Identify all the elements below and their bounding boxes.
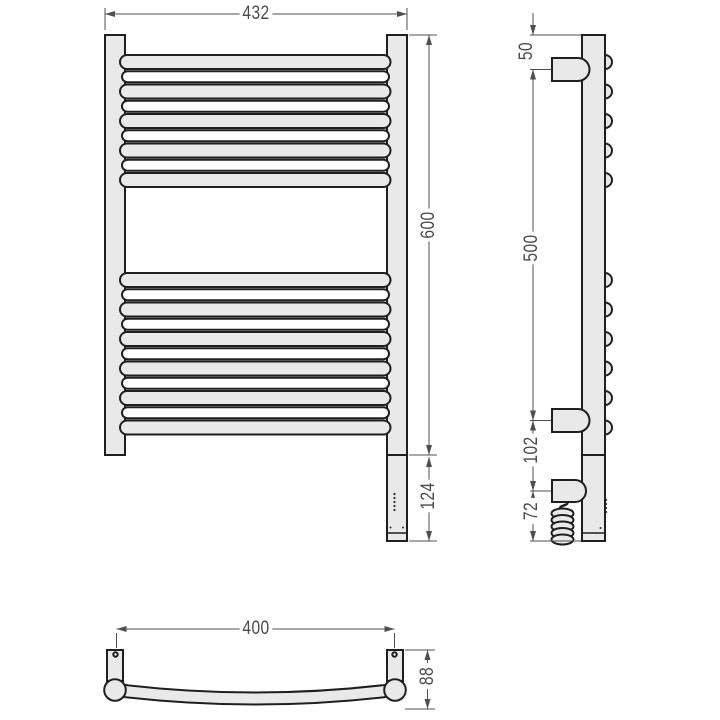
bar-end-bumps [605, 55, 612, 435]
side-post [582, 35, 605, 455]
front-right-post [387, 35, 407, 455]
heating-element-fitting [552, 480, 586, 502]
dim-bracket-span-label: 500 [523, 232, 541, 265]
dim-heater-offset-label: 102 [523, 434, 541, 467]
curved-bar-plan [120, 685, 391, 705]
technical-drawing-canvas: 432 600 124 50 500 102 72 400 88 [0, 0, 720, 720]
front-view [105, 8, 437, 541]
dim-bottom-offset-label: 72 [523, 498, 541, 524]
dim-depth-label: 88 [419, 663, 437, 689]
top-left-post-section [104, 679, 126, 701]
top-right-post-section [384, 679, 406, 701]
dim-heater-label: 124 [420, 480, 438, 513]
upper-wall-bracket [552, 58, 590, 81]
dim-600 [409, 35, 437, 455]
dim-top-offset-label: 50 [518, 38, 536, 64]
dim-mount-span-label: 400 [239, 620, 272, 638]
power-cable-coil [552, 502, 574, 545]
left-screw-hole [113, 652, 117, 656]
dim-width-label: 432 [240, 5, 273, 23]
dim-height-label: 600 [420, 209, 438, 242]
side-heater-housing [582, 455, 605, 541]
towel-rail-drawing [0, 0, 720, 720]
right-screw-hole [392, 652, 396, 656]
side-view [530, 13, 612, 545]
lower-wall-bracket [552, 409, 590, 432]
